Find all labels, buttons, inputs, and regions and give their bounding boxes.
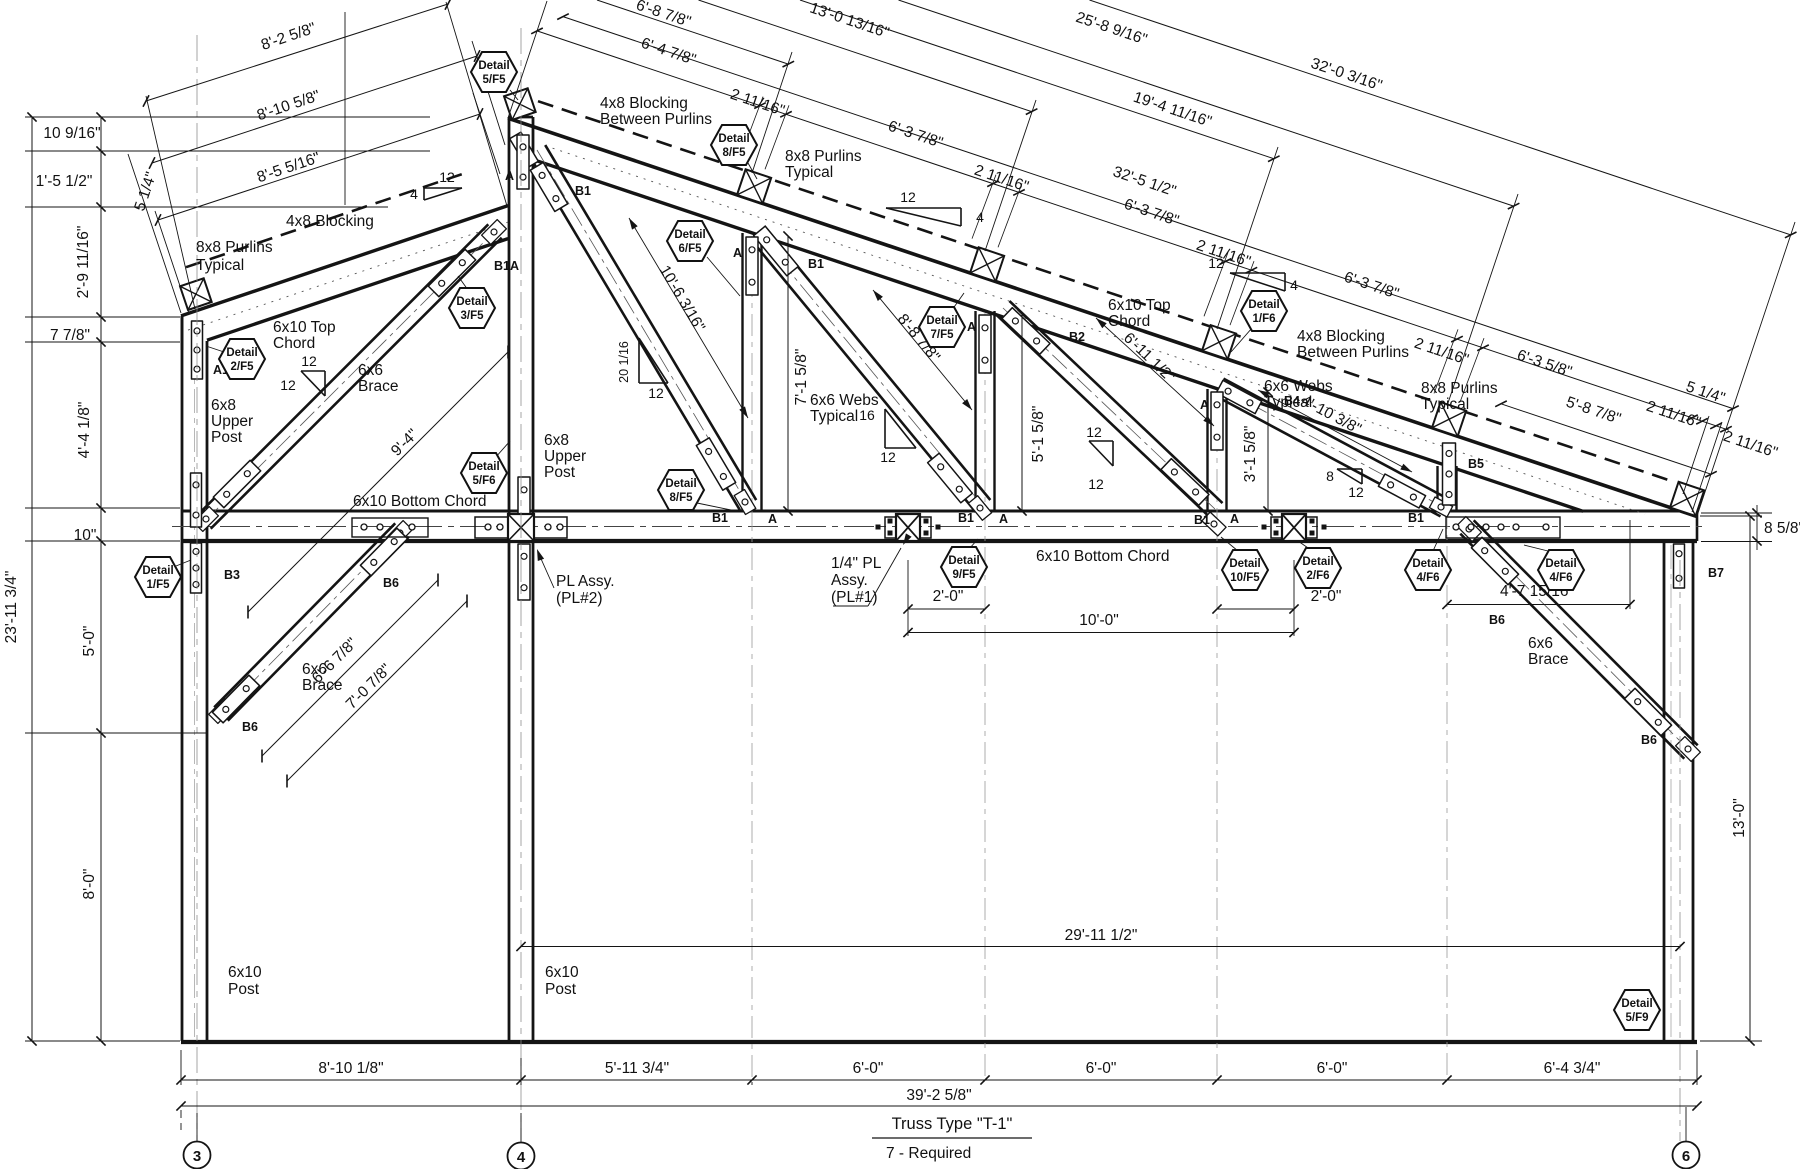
svg-text:B1: B1 — [958, 511, 974, 525]
svg-text:4x8 Blocking: 4x8 Blocking — [600, 95, 688, 112]
svg-text:6'-4 3/4": 6'-4 3/4" — [1544, 1060, 1601, 1077]
svg-text:Detail: Detail — [1248, 299, 1279, 311]
svg-text:10'-0": 10'-0" — [1079, 612, 1118, 629]
svg-text:6'-0": 6'-0" — [853, 1060, 884, 1077]
svg-text:16: 16 — [859, 407, 875, 423]
svg-text:39'-2 5/8": 39'-2 5/8" — [906, 1087, 971, 1104]
svg-text:Brace: Brace — [358, 378, 399, 395]
svg-text:Truss Type "T-1": Truss Type "T-1" — [892, 1115, 1013, 1133]
svg-text:6x10: 6x10 — [228, 964, 262, 981]
svg-text:4/F6: 4/F6 — [1549, 572, 1572, 584]
svg-text:12: 12 — [439, 169, 455, 185]
svg-text:Detail: Detail — [665, 478, 696, 490]
svg-text:2'-9 11/16": 2'-9 11/16" — [75, 226, 92, 299]
svg-text:6x8: 6x8 — [544, 432, 569, 449]
svg-text:12: 12 — [1086, 424, 1102, 440]
svg-text:7 7/8": 7 7/8" — [50, 327, 90, 344]
svg-text:(PL#1): (PL#1) — [831, 589, 878, 606]
svg-text:5'-1 5/8": 5'-1 5/8" — [1030, 406, 1047, 463]
svg-text:7/F5: 7/F5 — [930, 329, 954, 341]
svg-text:8x8 Purlins: 8x8 Purlins — [1421, 380, 1498, 397]
svg-text:4x8 Blocking: 4x8 Blocking — [1297, 328, 1385, 345]
svg-text:Detail: Detail — [1229, 558, 1260, 570]
svg-text:Brace: Brace — [1528, 651, 1569, 668]
svg-text:Brace: Brace — [302, 677, 343, 694]
svg-text:Post: Post — [544, 464, 576, 481]
svg-text:6x10 Top: 6x10 Top — [273, 319, 336, 336]
svg-text:8/F5: 8/F5 — [722, 147, 746, 159]
svg-text:4: 4 — [1290, 277, 1298, 293]
svg-text:10 9/16": 10 9/16" — [43, 125, 100, 142]
svg-text:Typical: Typical — [810, 408, 858, 425]
svg-text:7'-1 5/8": 7'-1 5/8" — [793, 349, 810, 406]
svg-text:B5: B5 — [1468, 457, 1484, 471]
svg-text:12: 12 — [301, 353, 317, 369]
svg-text:A: A — [1230, 512, 1239, 526]
svg-text:B1: B1 — [1194, 513, 1210, 527]
svg-text:3'-1 5/8": 3'-1 5/8" — [1242, 426, 1259, 483]
svg-text:B1: B1 — [1408, 511, 1424, 525]
svg-text:B6: B6 — [383, 576, 399, 590]
svg-text:1/F5: 1/F5 — [146, 579, 170, 591]
svg-text:Between Purlins: Between Purlins — [600, 111, 712, 128]
svg-text:B1: B1 — [575, 184, 591, 198]
svg-text:5'-11 3/4": 5'-11 3/4" — [605, 1060, 669, 1077]
svg-text:Detail: Detail — [456, 296, 487, 308]
svg-text:12: 12 — [900, 189, 916, 205]
svg-text:10/F5: 10/F5 — [1230, 572, 1260, 584]
svg-text:12: 12 — [648, 385, 664, 401]
svg-text:B3: B3 — [224, 568, 240, 582]
svg-text:6x6: 6x6 — [358, 362, 383, 379]
svg-text:Detail: Detail — [718, 133, 749, 145]
svg-text:2'-0": 2'-0" — [933, 588, 964, 605]
svg-text:8x8 Purlins: 8x8 Purlins — [785, 148, 862, 165]
svg-text:Detail: Detail — [1621, 998, 1652, 1010]
svg-text:4: 4 — [976, 209, 984, 225]
svg-text:10": 10" — [74, 527, 97, 544]
svg-text:Detail: Detail — [926, 315, 957, 327]
svg-text:1'-5 1/2": 1'-5 1/2" — [36, 173, 93, 190]
svg-text:B4: B4 — [1284, 394, 1300, 408]
svg-text:A: A — [999, 512, 1008, 526]
svg-text:Detail: Detail — [1545, 558, 1576, 570]
svg-text:4: 4 — [410, 186, 418, 202]
svg-text:12: 12 — [280, 377, 296, 393]
svg-text:6x10 Bottom Chord: 6x10 Bottom Chord — [353, 493, 487, 510]
svg-text:7 - Required: 7 - Required — [886, 1145, 971, 1162]
svg-text:A: A — [1200, 398, 1209, 412]
svg-text:Detail: Detail — [674, 229, 705, 241]
svg-text:6'-0": 6'-0" — [1317, 1060, 1348, 1077]
svg-text:B1A: B1A — [494, 259, 519, 273]
svg-text:2'-0": 2'-0" — [1311, 588, 1342, 605]
svg-text:Typical: Typical — [1421, 396, 1469, 413]
svg-text:A: A — [967, 320, 976, 334]
svg-text:Detail: Detail — [1412, 558, 1443, 570]
svg-text:Chord: Chord — [273, 335, 315, 352]
svg-text:8'-10 1/8": 8'-10 1/8" — [318, 1060, 383, 1077]
svg-text:Typical: Typical — [785, 164, 833, 181]
svg-text:29'-11 1/2": 29'-11 1/2" — [1065, 927, 1138, 944]
svg-text:Detail: Detail — [226, 347, 257, 359]
svg-text:A: A — [768, 512, 777, 526]
svg-text:6x6: 6x6 — [302, 661, 327, 678]
svg-text:Assy.: Assy. — [831, 572, 868, 589]
svg-text:13'-0": 13'-0" — [1731, 798, 1748, 837]
svg-text:4: 4 — [517, 1149, 526, 1166]
svg-text:12: 12 — [1208, 255, 1224, 271]
svg-text:6x6 Webs: 6x6 Webs — [1264, 378, 1333, 395]
svg-text:6: 6 — [1682, 1148, 1690, 1165]
svg-text:5/F6: 5/F6 — [472, 475, 495, 487]
svg-text:A: A — [733, 246, 742, 260]
svg-text:Chord: Chord — [1108, 313, 1150, 330]
svg-text:8: 8 — [1326, 468, 1334, 484]
svg-text:B6: B6 — [1641, 733, 1657, 747]
svg-text:B2: B2 — [1069, 330, 1085, 344]
svg-text:8 5/8": 8 5/8" — [1764, 520, 1800, 537]
svg-text:9/F5: 9/F5 — [952, 569, 976, 581]
svg-text:Typical: Typical — [196, 257, 244, 274]
svg-text:Detail: Detail — [478, 60, 509, 72]
svg-text:B7: B7 — [1708, 566, 1724, 580]
svg-text:B6: B6 — [1489, 613, 1505, 627]
svg-text:2/F6: 2/F6 — [1306, 570, 1329, 582]
svg-text:20 1/16: 20 1/16 — [617, 341, 631, 383]
svg-text:1/F6: 1/F6 — [1252, 313, 1275, 325]
svg-text:Between Purlins: Between Purlins — [1297, 344, 1409, 361]
svg-text:8x8 Purlins: 8x8 Purlins — [196, 239, 273, 256]
svg-text:23'-11 3/4": 23'-11 3/4" — [3, 571, 20, 644]
svg-text:B6: B6 — [242, 720, 258, 734]
svg-text:5/F5: 5/F5 — [482, 74, 506, 86]
svg-text:Upper: Upper — [544, 448, 586, 465]
svg-text:3: 3 — [193, 1148, 201, 1165]
svg-text:(PL#2): (PL#2) — [556, 590, 603, 607]
svg-text:4x8 Blocking: 4x8 Blocking — [286, 213, 374, 230]
svg-text:12: 12 — [1088, 476, 1104, 492]
svg-text:6/F5: 6/F5 — [678, 243, 702, 255]
svg-text:6x10 Top: 6x10 Top — [1108, 297, 1171, 314]
svg-text:6x6 Webs: 6x6 Webs — [810, 392, 879, 409]
svg-text:A: A — [505, 169, 514, 183]
svg-text:6x6: 6x6 — [1528, 635, 1553, 652]
svg-text:5/F9: 5/F9 — [1625, 1012, 1648, 1024]
svg-text:8/F5: 8/F5 — [669, 492, 693, 504]
svg-text:B1: B1 — [712, 511, 728, 525]
svg-text:2/F5: 2/F5 — [230, 361, 254, 373]
svg-text:B1: B1 — [808, 257, 824, 271]
svg-text:6x8: 6x8 — [211, 397, 236, 414]
svg-text:Detail: Detail — [948, 555, 979, 567]
svg-text:6x10: 6x10 — [545, 964, 579, 981]
svg-text:Detail: Detail — [1302, 556, 1333, 568]
svg-text:8'-0": 8'-0" — [81, 869, 98, 900]
svg-text:Post: Post — [211, 429, 243, 446]
svg-text:Detail: Detail — [468, 461, 499, 473]
svg-text:12: 12 — [880, 449, 896, 465]
svg-text:Upper: Upper — [211, 413, 253, 430]
svg-text:6x10 Bottom Chord: 6x10 Bottom Chord — [1036, 548, 1170, 565]
svg-text:Post: Post — [228, 981, 260, 998]
svg-text:Detail: Detail — [142, 565, 173, 577]
svg-text:4/F6: 4/F6 — [1416, 572, 1439, 584]
svg-text:12: 12 — [1348, 484, 1364, 500]
svg-text:1/4" PL: 1/4" PL — [831, 555, 882, 572]
svg-text:4'-4 1/8": 4'-4 1/8" — [76, 402, 93, 459]
svg-text:3/F5: 3/F5 — [460, 310, 484, 322]
svg-text:PL Assy.: PL Assy. — [556, 573, 615, 590]
svg-text:5'-0": 5'-0" — [81, 626, 98, 657]
svg-text:Post: Post — [545, 981, 577, 998]
svg-text:6'-0": 6'-0" — [1086, 1060, 1117, 1077]
